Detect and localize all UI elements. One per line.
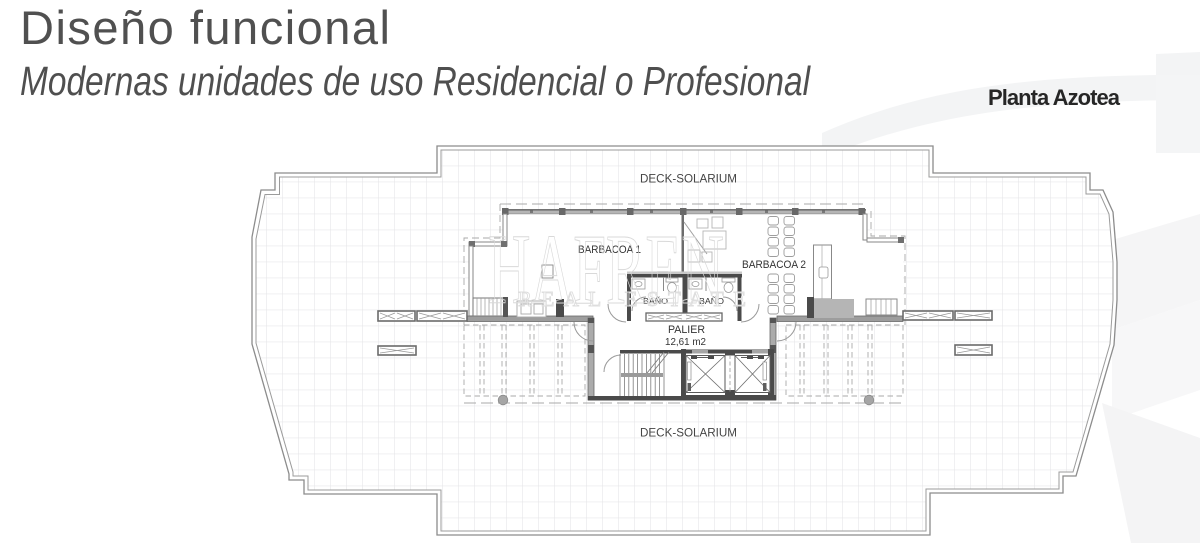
svg-text:DECK-SOLARIUM: DECK-SOLARIUM [640, 426, 737, 440]
svg-text:Diseño funcional: Diseño funcional [20, 1, 390, 54]
svg-text:Planta Azotea: Planta Azotea [988, 85, 1121, 110]
svg-text:DECK-SOLARIUM: DECK-SOLARIUM [640, 172, 737, 186]
svg-text:Modernas unidades de uso Resid: Modernas unidades de uso Residencial o P… [20, 58, 812, 104]
svg-text:PALIER: PALIER [668, 324, 705, 336]
svg-text:12,61 m2: 12,61 m2 [665, 336, 706, 348]
svg-text:BARBACOA 2: BARBACOA 2 [742, 259, 806, 271]
svg-text:REAL ESTATE: REAL ESTATE [518, 287, 746, 311]
